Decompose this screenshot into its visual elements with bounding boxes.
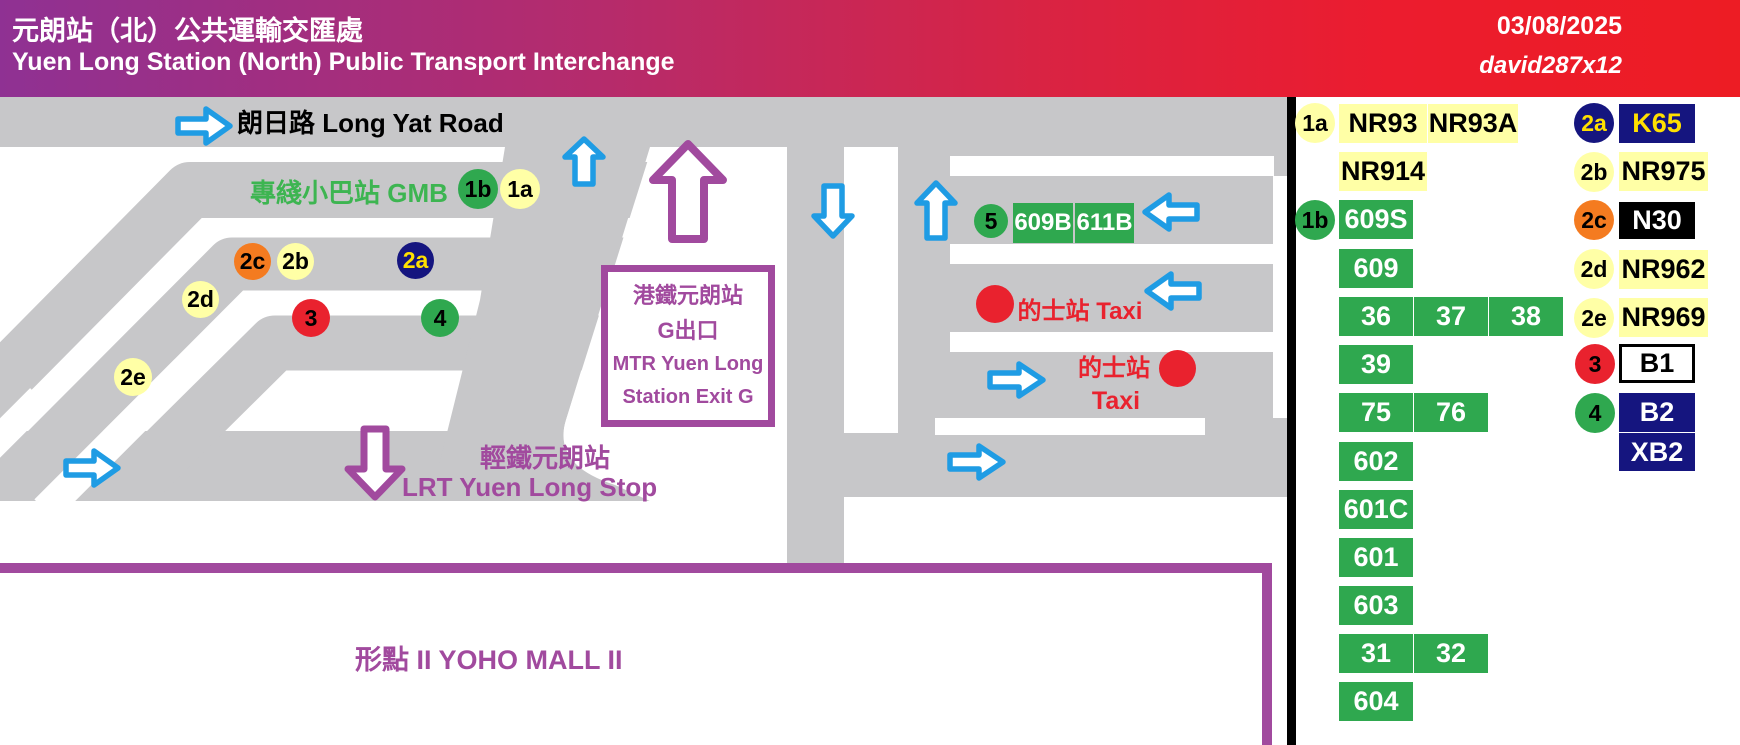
bay-2d: 2d: [182, 281, 219, 318]
platform-slot-4: [935, 418, 1205, 435]
yoho-mall-label: 形點 II YOHO MALL II: [355, 638, 605, 677]
taxi-dot-1: [976, 285, 1014, 323]
bay-4: 4: [421, 299, 459, 337]
legend-chip-B1: B1: [1619, 344, 1695, 383]
legend-chip-NR969: NR969: [1619, 298, 1708, 337]
legend-chip-XB2: XB2: [1619, 433, 1695, 471]
legend-bay-2c: 2c: [1574, 200, 1614, 240]
taxi-block-foot: [844, 433, 898, 497]
legend-bay-1a: 1a: [1295, 103, 1335, 143]
mtr-exit-line3: MTR Yuen Long: [608, 354, 768, 375]
legend-bay-2e: 2e: [1574, 298, 1614, 338]
legend-separator: [1287, 97, 1296, 745]
bay-2e: 2e: [114, 358, 152, 396]
legend-chip-K65: K65: [1619, 104, 1695, 143]
page-title-zh: 元朗站（北）公共運輸交匯處: [12, 9, 363, 48]
legend-chip-604: 604: [1339, 682, 1413, 721]
platform-slot-2: [950, 244, 1274, 264]
yoho-mall-block: [0, 563, 1272, 745]
legend-chip-31: 31: [1339, 634, 1413, 673]
legend-chip-601: 601: [1339, 538, 1413, 577]
mtr-exit-box: 港鐵元朗站 G出口 MTR Yuen Long Station Exit G: [601, 265, 775, 427]
legend-chip-603: 603: [1339, 586, 1413, 625]
mtr-exit-line4: Station Exit G: [608, 387, 768, 408]
legend-chip-601C: 601C: [1339, 490, 1413, 529]
bay-3: 3: [292, 299, 330, 337]
legend-bay-4: 4: [1575, 393, 1615, 433]
legend-chip-75: 75: [1339, 393, 1413, 432]
legend-chip-NR962: NR962: [1619, 250, 1708, 289]
mtr-exit-line2: G出口: [608, 319, 768, 342]
legend-bay-3: 3: [1575, 344, 1615, 384]
long-yat-road-label: 朗日路 Long Yat Road: [237, 103, 497, 140]
gmb-stop-label: 專綫小巴站 GMB: [250, 173, 446, 210]
legend-chip-39: 39: [1339, 345, 1413, 384]
bay-1a: 1a: [500, 169, 540, 209]
legend-chip-NR975: NR975: [1619, 152, 1708, 191]
legend-chip-76: 76: [1414, 393, 1488, 432]
legend-chip-NR914: NR914: [1339, 152, 1427, 191]
bay-2a: 2a: [397, 242, 434, 279]
route-609B: 609B: [1013, 203, 1073, 243]
taxi-dot-2: [1159, 350, 1196, 387]
legend-bay-2b: 2b: [1574, 152, 1614, 192]
legend-chip-609: 609: [1339, 249, 1413, 288]
bay-2b: 2b: [277, 243, 314, 280]
stop-5: 5: [974, 204, 1008, 238]
platform-slot-1: [950, 156, 1274, 176]
route-611B: 611B: [1075, 203, 1134, 243]
interchange-diagram: 形點 II YOHO MALL II 元朗站（北）公共運輸交匯處 Yuen Lo…: [0, 0, 1740, 745]
legend-bay-1b: 1b: [1295, 200, 1335, 240]
legend-chip-602: 602: [1339, 442, 1413, 481]
legend-chip-NR93A: NR93A: [1428, 104, 1518, 143]
taxi-stand-label-1: 的士站 Taxi: [1016, 291, 1144, 326]
legend-chip-N30: N30: [1619, 202, 1695, 239]
platform-slot-right: [1273, 176, 1287, 418]
legend-chip-36: 36: [1339, 297, 1413, 336]
legend-bay-2d: 2d: [1574, 249, 1614, 289]
legend-chip-32: 32: [1414, 634, 1488, 673]
bay-1b: 1b: [458, 169, 498, 209]
lrt-stop-label-zh: 輕鐵元朗站: [455, 438, 635, 475]
header-author: david287x12: [1360, 52, 1622, 80]
legend-chip-37: 37: [1414, 297, 1488, 336]
taxi-stand-label-2-zh: 的士站: [1076, 348, 1152, 383]
bay-2c: 2c: [234, 243, 271, 280]
mtr-exit-line1: 港鐵元朗站: [608, 284, 768, 307]
legend-chip-NR93: NR93: [1339, 104, 1427, 143]
legend-bay-2a: 2a: [1574, 103, 1614, 143]
header-date: 03/08/2025: [1360, 12, 1622, 41]
page-title-en: Yuen Long Station (North) Public Transpo…: [12, 48, 675, 77]
legend-chip-B2: B2: [1619, 393, 1695, 432]
taxi-stand-label-2-en: Taxi: [1090, 387, 1142, 416]
header-banner: 元朗站（北）公共運輸交匯處 Yuen Long Station (North) …: [0, 0, 1740, 97]
legend-chip-609S: 609S: [1339, 200, 1413, 239]
lrt-stop-label-en: LRT Yuen Long Stop: [402, 472, 632, 503]
legend-chip-38: 38: [1489, 297, 1563, 336]
